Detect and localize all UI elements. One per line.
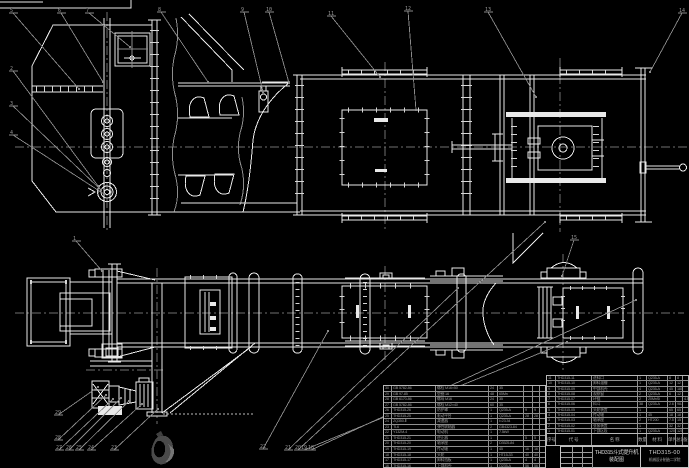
callout-22: 22 <box>259 330 329 450</box>
svg-text:19: 19 <box>301 445 307 451</box>
svg-text:23: 23 <box>111 445 117 451</box>
bom-cell: 16 <box>384 464 392 468</box>
callout-15: 15 <box>561 235 579 277</box>
svg-text:27: 27 <box>56 445 62 451</box>
bom-cell: 56 <box>524 464 533 468</box>
callout-10: 10 <box>265 7 290 84</box>
bom-table-right: 11THD315-11进料口1Q235-A8810THD315-10卸料溜槽1Q… <box>546 375 689 433</box>
top-access-box <box>115 31 150 68</box>
door-handle <box>408 305 411 318</box>
callout-28: 28 <box>54 394 107 441</box>
sig-cell <box>561 464 573 468</box>
callout-2: 2 <box>9 66 99 187</box>
callout-3: 3 <box>9 101 102 191</box>
bom-header-cell: 单件 <box>668 434 676 446</box>
bom-header-cell: 材 料 <box>647 434 668 446</box>
callout-5: 5 <box>9 8 80 90</box>
bom-header-cell: 代 号 <box>556 434 592 446</box>
svg-text:13: 13 <box>485 7 491 13</box>
drawing-frame-corner <box>0 0 131 8</box>
svg-text:10: 10 <box>266 7 272 13</box>
svg-text:7: 7 <box>86 8 89 14</box>
sig-cell <box>583 464 593 468</box>
take-up-screw-right <box>640 162 687 173</box>
drive-unit <box>90 344 153 415</box>
bom-cell: THD315-16 <box>392 464 436 468</box>
signature-grid <box>561 447 593 467</box>
bucket-bolt <box>259 86 268 112</box>
tail-section <box>452 68 687 263</box>
bom-table-left: 30GB 5782-86螺栓 M16×50243529GB 97-85垫圈 16… <box>383 385 546 468</box>
svg-text:29: 29 <box>55 410 61 416</box>
bom-cell <box>540 464 546 468</box>
org-name: 机械设计制造二学院 <box>641 457 688 463</box>
ink-blob <box>151 431 174 464</box>
callout-7: 7 <box>85 8 131 48</box>
cad-drawing-screenshot: 5678910111213142341152928272625242322212… <box>0 0 689 468</box>
callout-1: 1 <box>72 236 103 272</box>
svg-text:12: 12 <box>405 6 411 12</box>
bom-cell: 1 <box>489 464 498 468</box>
callout-26: 26 <box>65 397 122 451</box>
drawing-number: THD315-00 <box>641 449 688 457</box>
svg-text:6: 6 <box>58 8 61 14</box>
svg-text:22: 22 <box>260 444 266 450</box>
flex-section <box>483 283 623 345</box>
svg-text:2: 2 <box>10 66 13 72</box>
head-section <box>32 18 300 228</box>
doc-type: 装配图 <box>593 457 640 464</box>
bom-header-cell: 备注 <box>683 434 689 446</box>
svg-text:1: 1 <box>73 236 76 242</box>
callout-11: 11 <box>327 11 381 78</box>
bom-header-cell: 名 称 <box>592 434 638 446</box>
sig-cell <box>573 464 583 468</box>
svg-text:15: 15 <box>571 235 577 241</box>
bom-table-header: 序号代 号名 称数量材 料单件总计备注 <box>546 433 689 446</box>
svg-text:5: 5 <box>10 8 13 14</box>
callout-9: 9 <box>240 7 264 93</box>
bom-cell: Q235-A <box>498 464 524 468</box>
svg-text:14: 14 <box>679 8 685 14</box>
callout-12: 12 <box>404 6 417 111</box>
chute-section <box>172 14 308 215</box>
title-cell: THD315斗式提升机 装配图 <box>593 447 641 467</box>
svg-text:25: 25 <box>76 445 82 451</box>
bom-header-cell: 总计 <box>676 434 683 446</box>
callout-14: 14 <box>649 8 687 73</box>
drive-motor <box>136 378 153 409</box>
bom-header-cell: 序号 <box>547 434 556 446</box>
brace <box>162 343 255 413</box>
title-block: THD315斗式提升机 装配图 THD315-00 机械设计制造二学院 <box>560 446 689 468</box>
svg-text:28: 28 <box>55 435 61 441</box>
door-handle <box>374 118 388 122</box>
door-handle <box>375 169 387 172</box>
svg-text:24: 24 <box>88 445 94 451</box>
svg-text:9: 9 <box>241 7 244 13</box>
bom-cell: 上部机壳 <box>436 464 489 468</box>
svg-text:4: 4 <box>10 130 13 136</box>
bom-header-cell: 数量 <box>638 434 647 446</box>
buckets <box>185 95 239 196</box>
drawing-number-cell: THD315-00 机械设计制造二学院 <box>641 447 688 467</box>
svg-text:8: 8 <box>158 7 161 13</box>
bom-cell: 56 <box>533 464 540 468</box>
svg-text:26: 26 <box>66 445 72 451</box>
svg-text:18: 18 <box>308 445 314 451</box>
product-title: THD315斗式提升机 <box>593 449 640 457</box>
svg-text:3: 3 <box>10 101 13 107</box>
motor-base <box>98 406 122 415</box>
elevator-leg <box>147 283 255 416</box>
svg-text:21: 21 <box>285 445 291 451</box>
svg-text:11: 11 <box>328 11 334 17</box>
callout-13: 13 <box>484 7 537 98</box>
take-up-carriage <box>538 126 592 170</box>
door-handle <box>356 305 359 318</box>
